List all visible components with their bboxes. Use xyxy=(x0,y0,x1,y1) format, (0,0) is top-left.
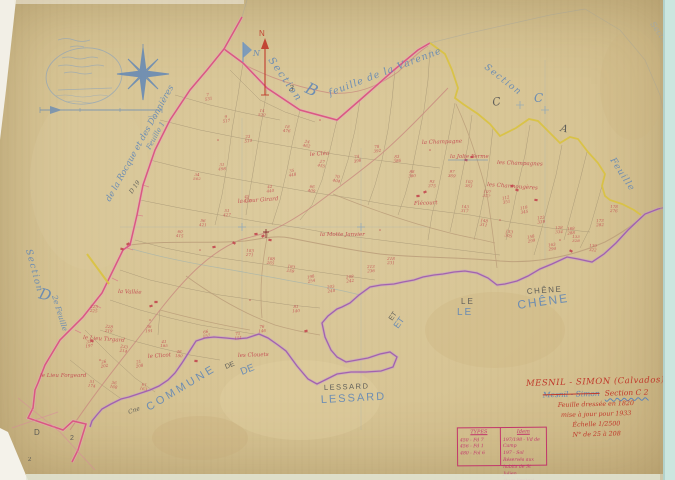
map-label: 2e Feuille xyxy=(50,293,70,333)
building-mark xyxy=(261,234,265,238)
boundary-dot xyxy=(149,319,151,321)
boundary-dot xyxy=(379,229,381,231)
parcel-number: 35448 xyxy=(287,167,298,178)
legend-right-header: Idem xyxy=(503,429,544,437)
boundary-dot xyxy=(199,249,201,251)
hamlet-label: le Cléa xyxy=(310,150,330,158)
parcel-number: 188265 xyxy=(266,255,276,265)
building-mark xyxy=(304,330,308,333)
hamlet-label: le Clicot xyxy=(148,352,172,360)
north-arrow-icon xyxy=(261,38,269,95)
boundary-dot xyxy=(499,219,501,221)
parcel-number: 18476 xyxy=(282,124,292,134)
map-label: D xyxy=(34,428,40,437)
parcel-number: 139322 xyxy=(589,243,598,253)
parcel-number: 76146 xyxy=(258,324,267,334)
legend-right-rows: 197/198 - Vd de Camp197 - Sol Réservés a… xyxy=(503,437,544,480)
parcel-number: 93375 xyxy=(428,179,436,188)
parcel-number: 7531 xyxy=(203,91,212,102)
parcel-number: 42440 xyxy=(265,184,275,194)
building-mark xyxy=(149,304,153,307)
map-label: 2 xyxy=(70,435,74,442)
building-mark xyxy=(154,301,157,303)
struck-commune-name: Mesnil - Simon xyxy=(543,389,600,399)
boundary-dot xyxy=(559,239,561,241)
legend-row: 197/198 - Vd de Camp xyxy=(503,437,544,451)
building-mark xyxy=(194,360,197,362)
map-label: LE xyxy=(461,297,475,306)
legend-row: habits de St Julien xyxy=(503,465,544,479)
map-label: N xyxy=(252,49,261,58)
map-label: feuille de la Varenne xyxy=(326,45,443,99)
building-mark xyxy=(423,190,427,193)
map-label: 2 xyxy=(28,457,32,463)
boundary-dot xyxy=(319,119,321,121)
legend-left-rows: 450 - Fd 7456 - Fd 1480 - Fol 6 xyxy=(460,438,498,459)
hamlet-label: les Champagnes xyxy=(497,160,543,168)
parcel-number: 223225 xyxy=(89,304,99,314)
parcel-number: 128334 xyxy=(555,225,564,235)
boundary-dot xyxy=(429,149,431,151)
map-label: DE xyxy=(224,361,236,371)
parcel-number: 26202 xyxy=(99,358,109,369)
map-label: C xyxy=(491,95,502,109)
legend-table: TYPES 450 - Fd 7456 - Fd 1480 - Fol 6 Id… xyxy=(457,427,547,467)
parcel-number: 56421 xyxy=(198,218,207,227)
parcel-number: 173282 xyxy=(595,218,604,227)
parcel-number: 123339 xyxy=(537,215,546,225)
parcel-number: 70404 xyxy=(331,173,342,184)
parcel-number: 112351 xyxy=(501,194,511,205)
parcel-number: 14520 xyxy=(258,108,267,118)
parcel-number: 36191 xyxy=(145,324,153,334)
parcel-number: 102363 xyxy=(465,179,474,189)
hamlet-label: les Charmougères xyxy=(487,181,538,192)
legend-left-header: TYPES xyxy=(460,429,498,437)
section-number: Section C 2 xyxy=(605,387,649,397)
parcel-number: 163294 xyxy=(547,242,557,252)
map-label: LE xyxy=(457,307,473,318)
parcel-number: 66157 xyxy=(202,328,212,338)
legend-row: 480 - Fol 6 xyxy=(460,451,498,458)
parcel-number: 66409 xyxy=(307,183,317,193)
parcel-number: 34502 xyxy=(193,172,201,181)
map-label: Section xyxy=(482,62,523,97)
building-mark xyxy=(254,233,257,236)
parcel-number: 74398 xyxy=(352,153,362,164)
parcel-number: 81140 xyxy=(292,304,300,313)
parcel-number: 51427 xyxy=(222,208,231,217)
parcel-number: 118345 xyxy=(520,204,529,214)
map-label: Feuille xyxy=(607,155,637,193)
building-mark xyxy=(268,239,272,242)
map-label: C xyxy=(534,91,543,105)
parcel-number: 148311 xyxy=(479,217,488,227)
building-mark xyxy=(534,199,537,202)
parcel-number: 60415 xyxy=(175,229,185,239)
parcel-number: 41185 xyxy=(160,339,168,348)
parcel-number: 193259 xyxy=(285,263,296,274)
parcel-number: 198254 xyxy=(306,273,317,284)
parcel-number: 107357 xyxy=(482,188,492,198)
map-label: Cne xyxy=(127,405,141,416)
parcel-number: 83386 xyxy=(393,154,402,164)
hamlet-label: les Clouets xyxy=(238,352,269,359)
update-date: mise à jour pour 1933 xyxy=(516,409,675,420)
parcel-number: 153305 xyxy=(504,228,514,239)
map-label: 3 xyxy=(289,84,294,93)
hamlet-label: la Champagne xyxy=(422,139,463,146)
legend-row: 197 - Sol Réservés aux xyxy=(503,451,544,465)
building-mark xyxy=(569,249,573,252)
parcel-number: 23514 xyxy=(244,134,253,144)
parcel-number: 213236 xyxy=(366,264,375,274)
parcel-number: 21208 xyxy=(133,358,144,369)
parcel-number: 143317 xyxy=(461,204,470,214)
compass-rose-icon xyxy=(117,44,169,100)
parcel-number: 178276 xyxy=(609,204,618,214)
hamlet-label: la Vallée xyxy=(118,288,143,296)
north-flag-icon xyxy=(243,42,252,62)
boundary-dot xyxy=(217,139,219,141)
map-label: A xyxy=(558,123,568,135)
parcel-number: 31498 xyxy=(217,162,227,172)
parcel-number: 203248 xyxy=(326,283,336,293)
parcel-number: 56168 xyxy=(109,379,118,389)
parcel-number: 78392 xyxy=(373,143,382,153)
parcel-number: 9517 xyxy=(222,113,231,123)
boundary-dot xyxy=(249,299,251,301)
hamlet-label: Flécourt xyxy=(413,199,439,207)
building-mark xyxy=(212,246,216,249)
parcel-number: 228219 xyxy=(104,323,114,333)
building-mark xyxy=(416,195,419,197)
parcel-number: 168288 xyxy=(566,226,576,236)
parcel-number: 88380 xyxy=(408,169,416,178)
parcel-number: 218231 xyxy=(386,256,395,265)
hamlet-label: la Motte Janvier xyxy=(320,232,365,238)
parcel-number: 158299 xyxy=(526,233,537,244)
parcel-number: 97369 xyxy=(448,169,457,179)
map-label: Section xyxy=(266,55,305,104)
scanned-cadastral-map: 7531951723514314983450214520184762446227… xyxy=(0,0,675,480)
parcel-number: 46180 xyxy=(175,349,184,359)
parcel-number: 133328 xyxy=(572,234,580,243)
hamlet-label: la Jolie Ferme xyxy=(450,154,489,160)
map-label: LESSARD xyxy=(324,381,370,392)
parcel-number: 208242 xyxy=(345,274,355,284)
parcel-number: 24462 xyxy=(301,138,311,149)
hamlet-label: le Lieu Forgeard xyxy=(40,373,87,379)
parcel-number: 183271 xyxy=(245,248,255,258)
map-label: N xyxy=(259,29,265,38)
